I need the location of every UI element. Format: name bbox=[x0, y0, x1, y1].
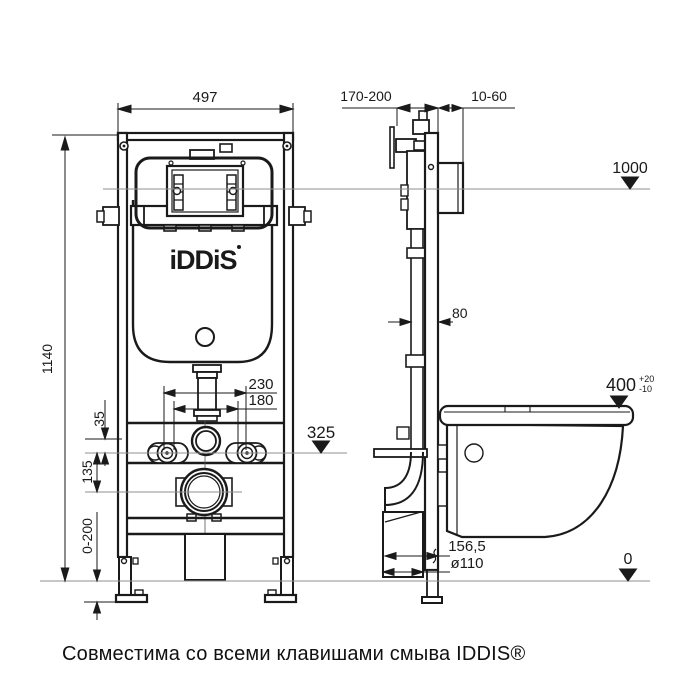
window-top-button bbox=[220, 144, 232, 152]
arrow bbox=[439, 319, 450, 326]
dim-497-lines bbox=[118, 103, 293, 133]
level-marker-0 bbox=[620, 569, 637, 581]
arrow bbox=[439, 105, 449, 112]
frame-left-rail bbox=[118, 133, 127, 557]
dimensions bbox=[52, 103, 639, 620]
arrow bbox=[61, 137, 69, 150]
dim-180-label: 180 bbox=[248, 392, 273, 409]
frame-screw-left-dot bbox=[123, 145, 126, 148]
arrow bbox=[400, 319, 411, 326]
dim-400-label: 400 bbox=[606, 375, 636, 395]
cistern-fitting bbox=[401, 199, 408, 210]
level-marker-325 bbox=[313, 441, 330, 453]
level-325-label: 325 bbox=[307, 423, 335, 442]
dim-400-tol-minus: -10 bbox=[639, 384, 652, 394]
inlet-pipe bbox=[390, 127, 394, 168]
bowl-stud-connector bbox=[438, 445, 447, 459]
frame-top-bar bbox=[118, 133, 293, 140]
shelf-bracket bbox=[374, 449, 427, 457]
bowl-inlet-detail bbox=[465, 444, 483, 462]
installation-frame-drawing: iDDiS bbox=[0, 0, 700, 620]
side-lug-right bbox=[289, 207, 305, 225]
arrow bbox=[102, 428, 109, 439]
elbow-box bbox=[383, 512, 423, 577]
flush-pipe-flange-2 bbox=[197, 416, 217, 421]
dim-170-200-label: 170-200 bbox=[340, 88, 392, 104]
frame-right-rail bbox=[284, 133, 293, 557]
bowl-drain-connector bbox=[438, 472, 447, 506]
inlet-valve bbox=[396, 139, 416, 152]
arrow bbox=[397, 104, 410, 112]
arrow bbox=[425, 104, 438, 112]
toilet-seat bbox=[440, 406, 633, 425]
frame-screw-right-dot bbox=[286, 145, 289, 148]
pipe-clamp bbox=[397, 427, 409, 439]
side-foot bbox=[427, 570, 438, 597]
dim-1140-lines bbox=[52, 135, 118, 581]
side-lug-right-tab bbox=[304, 211, 311, 222]
dim-156-label: 156,5 bbox=[448, 538, 486, 555]
side-lug-left bbox=[103, 207, 119, 225]
dim-1140-label: 1140 bbox=[39, 344, 55, 374]
foot-left-base bbox=[116, 595, 147, 602]
level-1000-label: 1000 bbox=[612, 160, 648, 177]
side-foot-base bbox=[422, 597, 442, 603]
front-view bbox=[97, 133, 311, 602]
flush-pipe-collar bbox=[193, 365, 221, 372]
dim-230-label: 230 bbox=[248, 376, 273, 393]
arrow bbox=[452, 105, 462, 112]
arrow bbox=[118, 105, 131, 113]
dim-497-label: 497 bbox=[192, 89, 217, 106]
lower-band bbox=[127, 518, 284, 534]
arrow bbox=[227, 406, 238, 413]
dim-400-tol-plus: +20 bbox=[639, 374, 654, 384]
inlet-connector bbox=[414, 141, 425, 150]
foot-right-base bbox=[265, 595, 296, 602]
compatibility-caption: Совместима со всеми клавишами смыва IDDI… bbox=[62, 643, 525, 666]
arrow bbox=[174, 406, 185, 413]
frame-plate bbox=[425, 133, 438, 570]
arrow bbox=[280, 105, 293, 113]
side-view bbox=[374, 111, 633, 603]
elbow-inner bbox=[385, 452, 411, 505]
arrow bbox=[164, 390, 175, 397]
foot-right-clip bbox=[273, 558, 278, 564]
foot-left-clip bbox=[133, 558, 138, 564]
access-box bbox=[438, 163, 463, 213]
side-lug-left-tab bbox=[97, 211, 104, 222]
dim-110-label: ø110 bbox=[450, 555, 483, 572]
arrow bbox=[61, 568, 69, 581]
flush-pipe bbox=[198, 378, 216, 412]
cistern-fitting bbox=[401, 185, 408, 196]
iddis-logo: iDDiS bbox=[169, 245, 236, 275]
level-marker-1000 bbox=[622, 177, 639, 189]
cistern-side bbox=[407, 151, 425, 229]
arrow bbox=[102, 453, 109, 464]
outlet-box bbox=[185, 534, 225, 580]
technical-drawing-page: iDDiS bbox=[0, 0, 700, 700]
dim-0-200-label: 0-200 bbox=[79, 518, 95, 554]
arrow bbox=[94, 602, 101, 613]
side-flush-pipe bbox=[411, 229, 423, 452]
elbow-outer bbox=[385, 452, 423, 512]
dim-35-label: 35 bbox=[91, 411, 107, 427]
dim-10-60-label: 10-60 bbox=[471, 88, 507, 104]
dim-80-label: 80 bbox=[452, 305, 468, 321]
arrow bbox=[94, 570, 101, 581]
arrow bbox=[235, 390, 246, 397]
toilet-bowl bbox=[447, 424, 623, 537]
logo-trademark-dot bbox=[237, 245, 241, 249]
dim-135-label: 135 bbox=[79, 460, 95, 484]
level-0-label: 0 bbox=[624, 551, 633, 568]
flush-pipe-flange bbox=[194, 410, 220, 416]
